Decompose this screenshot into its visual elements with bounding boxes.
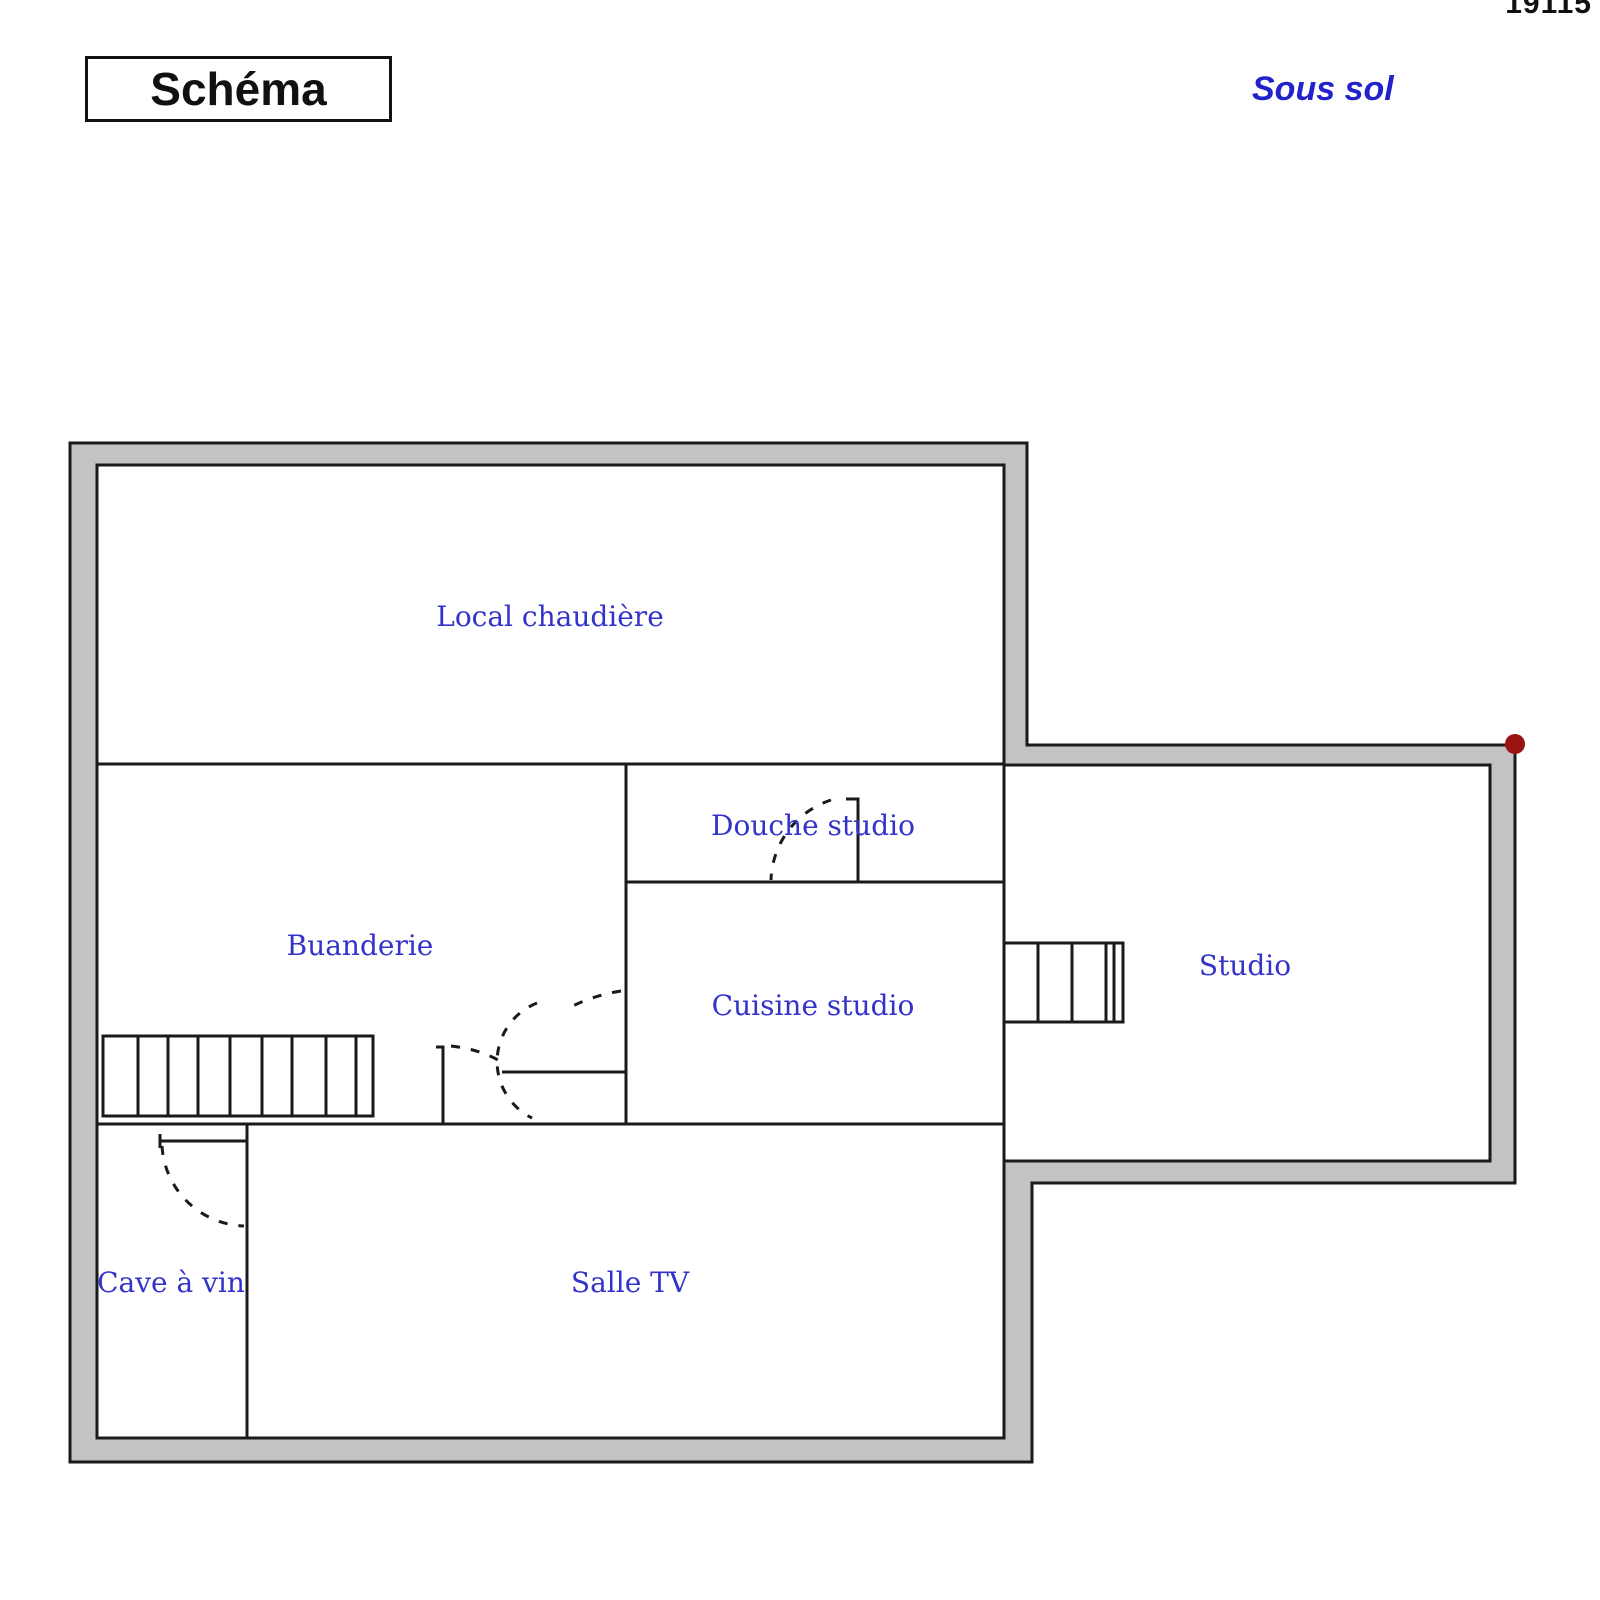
wall-cave-door-leaf	[160, 1134, 247, 1148]
staircase-buanderie	[103, 1036, 373, 1116]
floorplan-drawing: Local chaudière Douche studio Buanderie …	[0, 0, 1600, 1600]
room-label-buanderie: Buanderie	[287, 929, 434, 962]
door-arc-cave	[162, 1146, 244, 1226]
corner-marker-dot	[1505, 734, 1525, 754]
door-arc-passage-fragment	[451, 1046, 498, 1060]
wall-passage-door-post	[436, 1047, 443, 1124]
room-label-local-chaudiere: Local chaudière	[436, 600, 664, 633]
door-arc-cuisine-fragment	[565, 991, 621, 1010]
room-label-douche-studio: Douche studio	[711, 809, 915, 842]
door-arc-buanderie-salle-tv	[497, 1003, 537, 1118]
staircase-studio	[1004, 943, 1123, 1022]
room-label-cave-a-vin: Cave à vin	[97, 1266, 245, 1299]
room-label-cuisine-studio: Cuisine studio	[712, 989, 915, 1022]
page: 19115 Schéma Sous sol	[0, 0, 1600, 1600]
stairs-box	[103, 1036, 373, 1116]
room-label-salle-tv: Salle TV	[571, 1266, 690, 1299]
room-label-studio: Studio	[1199, 949, 1291, 982]
